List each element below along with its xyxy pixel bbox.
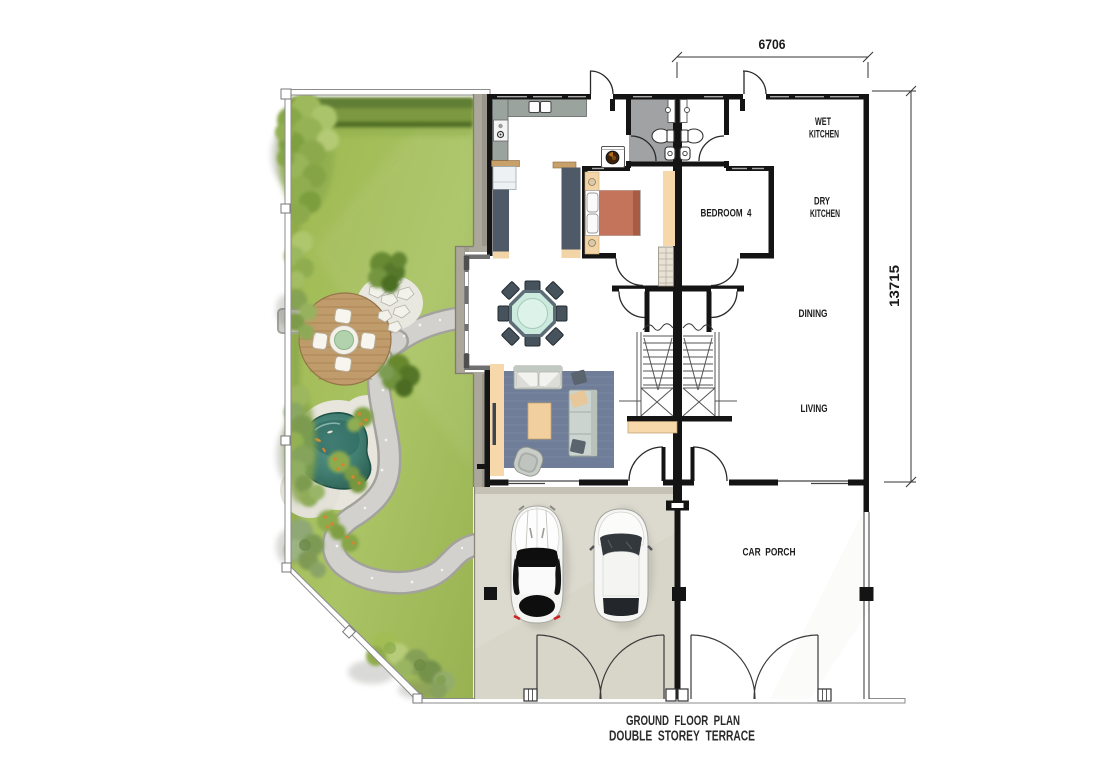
svg-text:WET: WET [815,116,831,128]
svg-text:DINING: DINING [799,308,828,320]
svg-text:CAR PORCH: CAR PORCH [743,547,796,559]
svg-text:GROUND FLOOR PLAN: GROUND FLOOR PLAN [626,712,740,728]
svg-text:BEDROOM 4: BEDROOM 4 [701,208,753,220]
svg-text:KITCHEN: KITCHEN [809,129,839,141]
svg-text:LIVING: LIVING [801,403,828,415]
svg-text:6706: 6706 [759,36,786,52]
svg-text:DRY: DRY [814,196,830,208]
svg-text:13715: 13715 [886,265,902,307]
svg-text:KITCHEN: KITCHEN [810,208,840,220]
svg-text:DOUBLE STOREY TERRACE: DOUBLE STOREY TERRACE [609,729,755,745]
